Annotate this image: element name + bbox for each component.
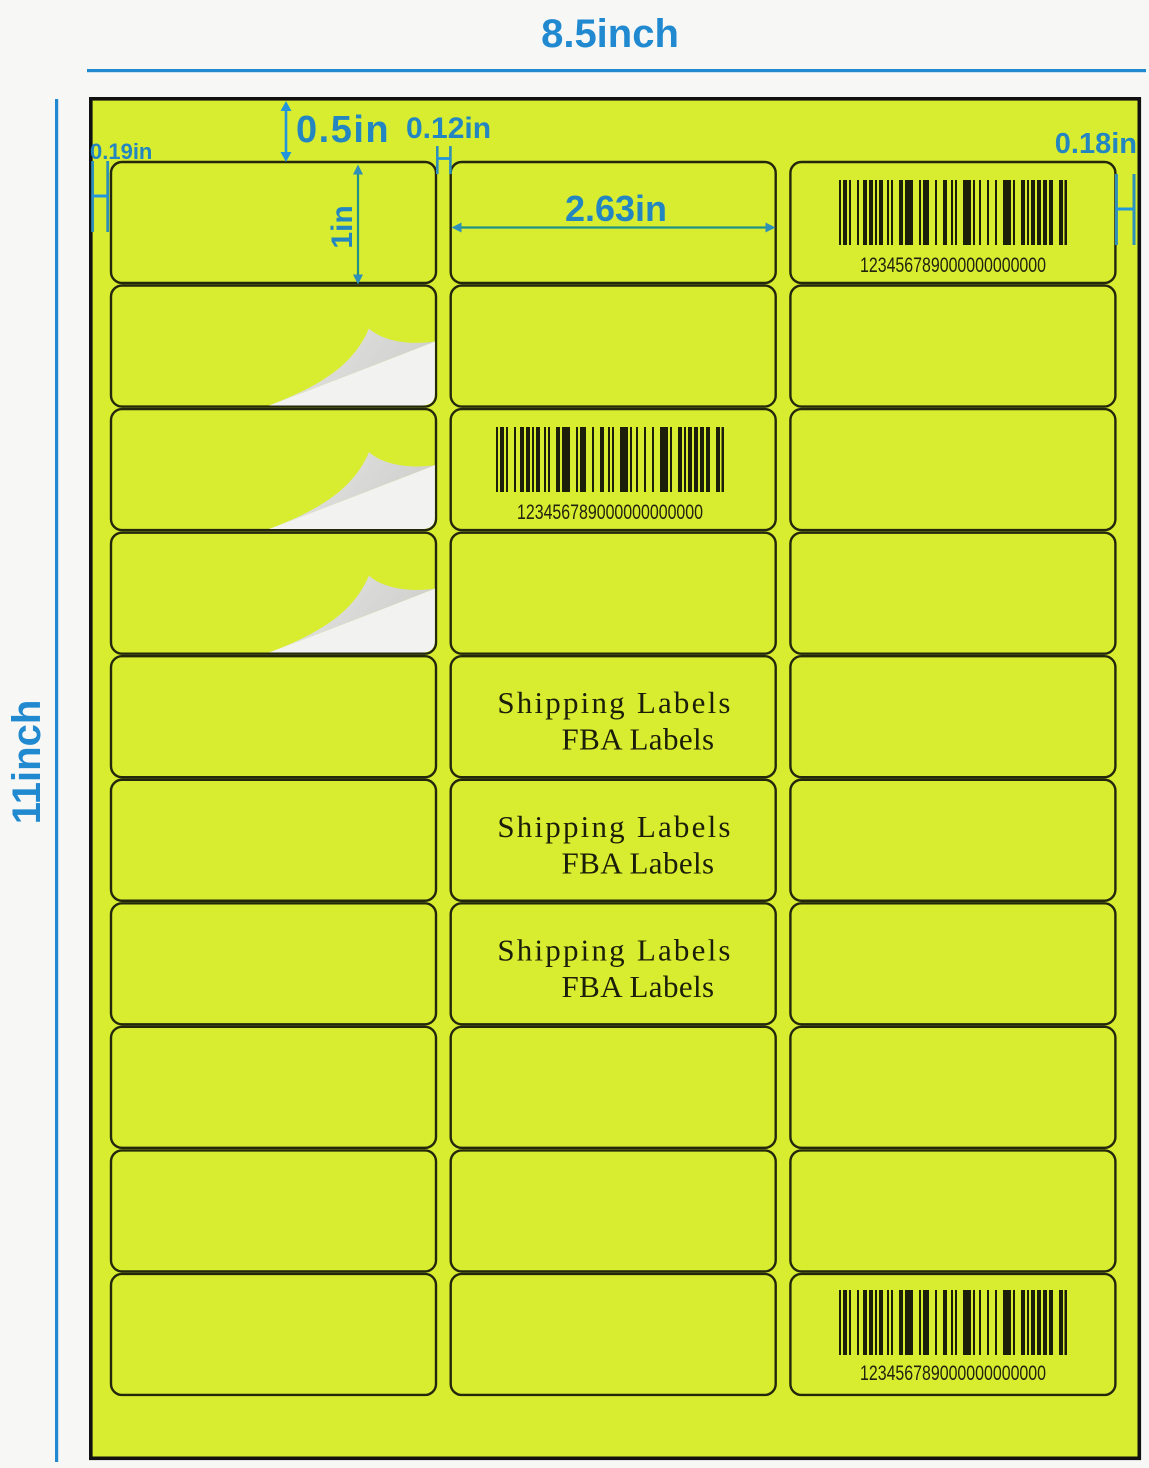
svg-text:123456789000000000000: 123456789000000000000 <box>860 1362 1046 1385</box>
svg-text:1in: 1in <box>326 205 359 248</box>
svg-text:0.5in: 0.5in <box>296 109 390 151</box>
svg-text:FBA Labels: FBA Labels <box>562 969 715 1004</box>
svg-text:Shipping Labels: Shipping Labels <box>497 932 732 967</box>
svg-text:0.18in: 0.18in <box>1055 128 1137 160</box>
svg-text:Shipping Labels: Shipping Labels <box>497 685 732 720</box>
svg-text:8.5inch: 8.5inch <box>541 12 679 56</box>
svg-text:11inch: 11inch <box>5 700 49 825</box>
svg-text:Shipping Labels: Shipping Labels <box>497 809 732 844</box>
svg-text:0.19in: 0.19in <box>90 139 152 164</box>
svg-text:123456789000000000000: 123456789000000000000 <box>517 501 703 524</box>
svg-text:FBA Labels: FBA Labels <box>562 722 715 757</box>
svg-text:123456789000000000000: 123456789000000000000 <box>860 254 1046 277</box>
svg-text:FBA Labels: FBA Labels <box>562 845 715 880</box>
svg-text:0.12in: 0.12in <box>406 112 491 145</box>
svg-text:2.63in: 2.63in <box>565 188 667 229</box>
